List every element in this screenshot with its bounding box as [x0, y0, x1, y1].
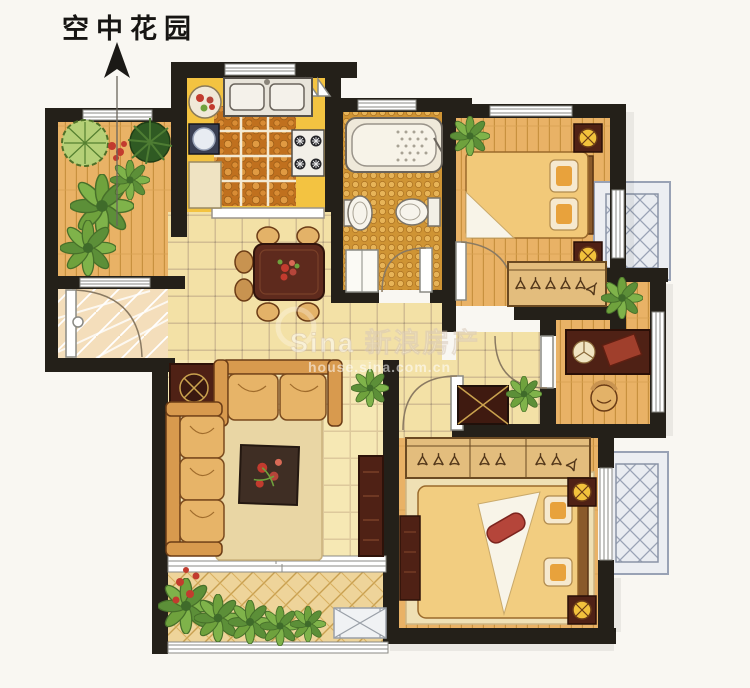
- plant-icon: [110, 160, 150, 200]
- floorplan-canvas: Sina 新浪房产 house.sina.com.cn 空中花园: [0, 0, 750, 688]
- double-sink-icon: [224, 78, 312, 116]
- dining-table-icon: [254, 244, 324, 300]
- plant-icon: [601, 277, 643, 319]
- dining-chair-icon: [257, 303, 279, 321]
- washing-machine-icon: [189, 124, 219, 154]
- bath-cabinet-icon: [346, 250, 378, 292]
- gas-stove-icon: [292, 130, 324, 176]
- study-window: [652, 312, 664, 412]
- flower-plate-icon: [189, 86, 221, 118]
- master-bay-sill: [600, 468, 612, 560]
- flower-rug: [239, 445, 299, 505]
- round-tree-icon: [62, 120, 108, 166]
- bathroom-window: [358, 100, 416, 110]
- master-bedroom-furniture: [400, 438, 596, 624]
- sofa-3seat-icon: [166, 402, 224, 556]
- bay-window-south: [606, 452, 668, 574]
- kitchen-cabinet-icon: [189, 162, 221, 208]
- x-brace-hatch: [616, 464, 658, 562]
- hanger-wardrobe-icon: [406, 438, 590, 478]
- watermark-brand: Sina 新浪房产: [290, 327, 481, 358]
- dresser-icon: [400, 516, 420, 600]
- plant-icon: [450, 116, 490, 156]
- tv-cabinet-icon: [359, 456, 383, 556]
- shoe-cabinet-icon: [458, 386, 508, 424]
- ac-platform-icon: [334, 608, 386, 638]
- desk-icon: [566, 330, 650, 374]
- up-arrow-icon: [104, 42, 130, 78]
- hanger-closet-icon: [508, 262, 606, 306]
- nightstand-icon: [574, 124, 602, 152]
- kitchen-threshold: [212, 208, 324, 218]
- pedestal-sink-icon: [344, 196, 372, 230]
- sky-garden-label: 空中花园: [62, 13, 198, 44]
- watermark-url: house.sina.com.cn: [308, 359, 451, 375]
- nightstand-icon: [568, 596, 596, 624]
- bed-icon: [418, 486, 588, 618]
- bed-icon: [466, 152, 593, 238]
- toilet-icon: [396, 198, 440, 226]
- plant-icon: [290, 606, 326, 642]
- floorplan-page: Sina 新浪房产 house.sina.com.cn 空中花园: [0, 0, 750, 688]
- dining-chair-icon: [235, 279, 253, 301]
- dining-chair-icon: [297, 227, 319, 245]
- plant-icon: [60, 220, 116, 276]
- garden-bottom-window: [80, 278, 150, 287]
- nightstand-icon: [568, 478, 596, 506]
- kitchen-window: [225, 64, 295, 75]
- dining-chair-icon: [235, 251, 253, 273]
- bedroom-north-window: [490, 106, 572, 116]
- bathtub-icon: [346, 118, 442, 172]
- plant-icon: [506, 376, 542, 412]
- chair-icon: [591, 382, 617, 411]
- bedroom-north-side-window: [612, 190, 624, 258]
- dining-chair-icon: [257, 227, 279, 245]
